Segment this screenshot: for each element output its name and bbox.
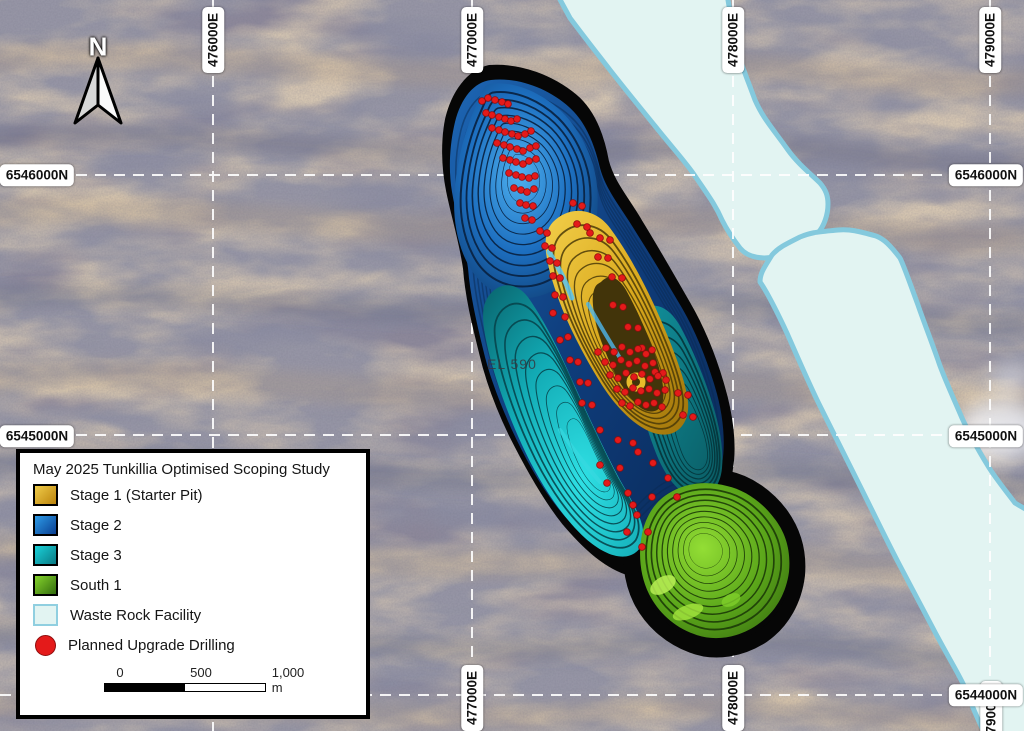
legend-box: May 2025 Tunkillia Optimised Scoping Stu… <box>16 449 370 719</box>
legend-swatch-stage1 <box>33 484 58 506</box>
scale-tick-1000: 1,000 m <box>272 665 305 695</box>
legend-swatch-stage3 <box>33 544 58 566</box>
scale-bar: 0 500 1,000 m <box>88 665 318 692</box>
tenement-label: EL 590 <box>487 356 537 372</box>
scale-tick-0: 0 <box>116 665 123 680</box>
grid-label-easting-bottom-478000: 478000E <box>722 665 744 731</box>
legend-item-stage3: Stage 3 <box>33 540 366 570</box>
grid-label-easting-top-476000: 476000E <box>202 7 224 73</box>
legend-label-waste-rock: Waste Rock Facility <box>70 607 201 624</box>
legend-swatch-waste-rock <box>33 604 58 626</box>
legend-item-waste-rock: Waste Rock Facility <box>33 600 366 630</box>
legend-item-south1: South 1 <box>33 570 366 600</box>
map-canvas: EL 590 N 476000E 477000E 478000E 479000E… <box>0 0 1024 731</box>
grid-label-northing-left-6545000: 6545000N <box>0 425 74 447</box>
legend-label-drilling: Planned Upgrade Drilling <box>68 637 235 654</box>
north-arrow <box>63 52 133 132</box>
grid-label-northing-left-6546000: 6546000N <box>0 164 74 186</box>
grid-label-easting-bottom-477000: 477000E <box>461 665 483 731</box>
north-arrow-label: N <box>89 32 108 63</box>
grid-label-northing-right-6545000: 6545000N <box>949 425 1023 447</box>
legend-title: May 2025 Tunkillia Optimised Scoping Stu… <box>33 461 366 478</box>
grid-label-easting-top-478000: 478000E <box>722 7 744 73</box>
scale-tick-500: 500 <box>190 665 212 680</box>
legend-swatch-south1 <box>33 574 58 596</box>
legend-swatch-drilling <box>35 635 56 656</box>
legend-item-stage1: Stage 1 (Starter Pit) <box>33 480 366 510</box>
legend-label-stage1: Stage 1 (Starter Pit) <box>70 487 203 504</box>
legend-label-south1: South 1 <box>70 577 122 594</box>
legend-swatch-stage2 <box>33 514 58 536</box>
grid-label-northing-right-6544000: 6544000N <box>949 684 1023 706</box>
grid-label-northing-right-6546000: 6546000N <box>949 164 1023 186</box>
scale-bar-ticks: 0 500 1,000 m <box>88 665 318 680</box>
legend-item-stage2: Stage 2 <box>33 510 366 540</box>
legend-label-stage2: Stage 2 <box>70 517 122 534</box>
legend-label-stage3: Stage 3 <box>70 547 122 564</box>
legend-item-drilling: Planned Upgrade Drilling <box>33 630 366 660</box>
scale-bar-graphic <box>104 683 266 692</box>
grid-label-easting-top-477000: 477000E <box>461 7 483 73</box>
grid-label-easting-top-479000: 479000E <box>979 7 1001 73</box>
